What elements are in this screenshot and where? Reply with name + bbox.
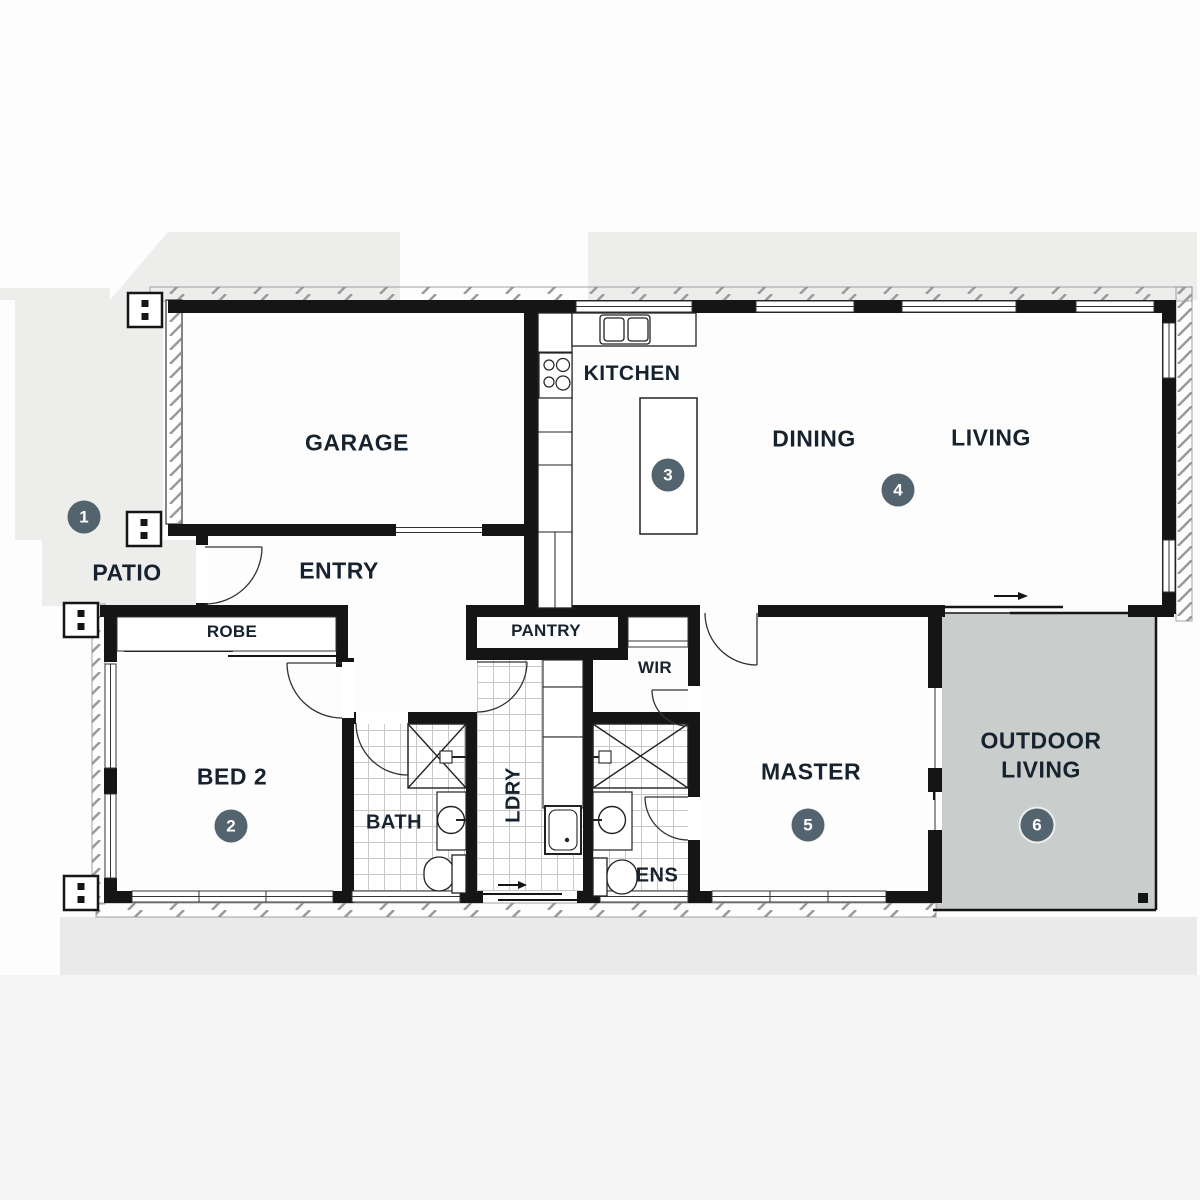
garage-label: GARAGE: [305, 430, 409, 457]
robe-label: ROBE: [207, 622, 257, 642]
plan-linework: [0, 0, 1200, 1200]
floor-plan-canvas: GARAGE KITCHEN DINING LIVING ENTRY PATIO…: [0, 0, 1200, 1200]
living-door-arrow: [994, 592, 1028, 600]
marker-2-bed2: 2: [215, 810, 248, 843]
bath-label: BATH: [366, 812, 422, 835]
window-bottom-ensuite: [600, 891, 688, 902]
ensuite-vanity-basin: [593, 792, 632, 850]
pier-post: [127, 512, 161, 546]
wir-shelf: [628, 617, 688, 647]
wir-label: WIR: [638, 658, 672, 678]
marker-4-living: 4: [882, 474, 915, 507]
window-right-living-lower: [1163, 540, 1175, 592]
pier-post: [128, 293, 162, 327]
walls: [100, 300, 1176, 903]
kitchen-label: KITCHEN: [584, 362, 681, 386]
living-stacker-door: [945, 607, 1128, 613]
master-door-swing: [705, 613, 757, 665]
laundry-fixtures: [543, 660, 583, 854]
bed2-label: BED 2: [197, 764, 267, 791]
window-top-living-1: [902, 301, 1016, 312]
outdoor-corner-post: [1138, 893, 1148, 903]
marker-3-island: 3: [652, 459, 685, 492]
cooktop: [539, 353, 572, 398]
ensuite-door-swing: [645, 797, 688, 840]
window-bottom-bed2: [132, 891, 333, 902]
ensuite-label: ENS: [636, 865, 679, 888]
ensuite-shower: [593, 724, 688, 788]
bath-shower: [408, 724, 466, 788]
windows: [105, 301, 1175, 902]
shower-head-icon: [440, 751, 452, 763]
laundry-cupboards: [543, 660, 583, 808]
window-top-living-2: [1076, 301, 1154, 312]
window-right-living-upper: [1163, 323, 1175, 378]
laundry-exit-arrow: [498, 881, 527, 889]
garage-side-wall: [166, 300, 182, 524]
storage-internals: [117, 617, 688, 651]
ensuite-toilet: [593, 858, 637, 896]
window-left-bed2-lower: [105, 794, 116, 878]
entry-door-swing: [205, 547, 262, 604]
laundry-tub: [545, 806, 581, 854]
window-top-dining: [756, 301, 854, 312]
pantry-label: PANTRY: [511, 621, 581, 641]
shower-head-icon: [599, 751, 611, 763]
laundry-sliding-door: [483, 894, 577, 900]
bath-door-swing: [356, 723, 408, 775]
patio-label: PATIO: [92, 560, 161, 587]
entry-label: ENTRY: [299, 558, 379, 585]
robe-sliding-door: [124, 651, 340, 656]
dining-label: DINING: [772, 426, 856, 453]
master-label: MASTER: [761, 759, 861, 786]
bed2-door-swing: [287, 663, 342, 718]
outdoor-living-label-line1: OUTDOOR: [980, 728, 1101, 755]
kitchen-sink: [600, 315, 650, 344]
outdoor-living-label-line2: LIVING: [1001, 757, 1081, 784]
bath-fixtures: [408, 724, 466, 893]
laundry-door-swing: [477, 662, 527, 712]
window-left-bed2-upper: [105, 664, 116, 768]
pier-post: [64, 876, 98, 910]
laundry-label: LDRY: [503, 767, 526, 823]
window-bottom-bath: [352, 891, 460, 902]
marker-1-patio: 1: [68, 501, 101, 534]
window-top-kitchen: [576, 301, 692, 312]
marker-5-master: 5: [792, 809, 825, 842]
pier-post: [64, 603, 98, 637]
living-label: LIVING: [951, 425, 1031, 452]
door-swing-arcs: [205, 547, 757, 840]
bath-toilet: [424, 855, 466, 893]
bath-vanity-basin: [437, 792, 466, 850]
window-bottom-master: [712, 891, 886, 902]
marker-6-outdoor: 6: [1021, 809, 1054, 842]
